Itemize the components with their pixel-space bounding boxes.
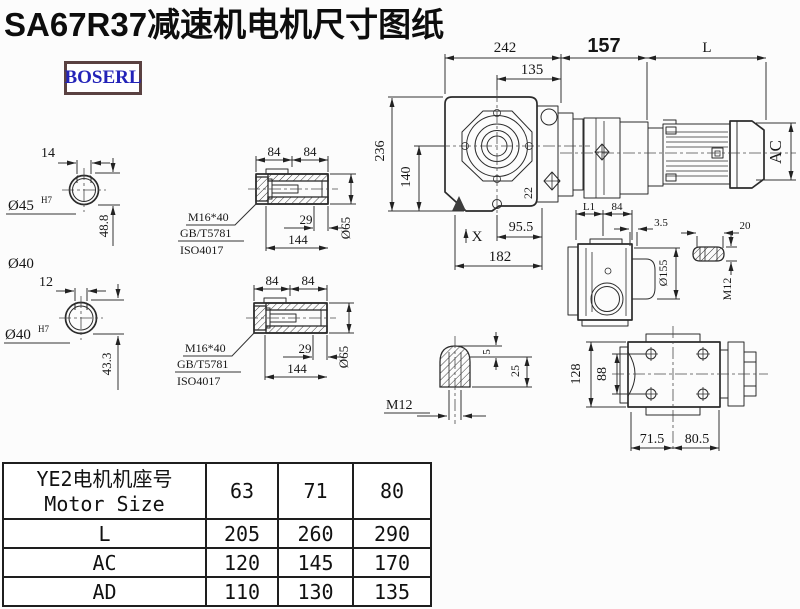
- dim-keyway-width: 14: [41, 146, 55, 161]
- cell-AD-71: 130: [278, 577, 353, 606]
- view-gearbox-side: L1 84 3.5 Ø155 20 M12: [568, 201, 751, 326]
- label-od-40: Ø40: [8, 256, 34, 272]
- view-gearbox-front: 22 X 242 135 236 140 95.5 182: [373, 40, 590, 270]
- label-std-gb: GB/T5781: [180, 226, 231, 240]
- label-bolt: M16*40: [185, 341, 226, 355]
- cell-AC-63: 120: [206, 548, 278, 577]
- label-plug-m12: M12: [720, 278, 734, 301]
- dim-motor-dia: AC: [766, 140, 785, 164]
- dim-144: 144: [288, 232, 308, 247]
- dim-71-5: 71.5: [640, 432, 665, 447]
- dim-dia-155: Ø155: [656, 260, 670, 287]
- label-std-gb: GB/T5781: [177, 357, 228, 371]
- cell-L-80: 290: [353, 519, 431, 548]
- table-header-80: 80: [353, 463, 431, 519]
- dim-l1: L1: [583, 201, 595, 213]
- cell-AC-80: 170: [353, 548, 431, 577]
- row-label-AD: AD: [3, 577, 206, 606]
- label-bolt: M16*40: [188, 210, 229, 224]
- surface-mark-triangle: [452, 196, 466, 211]
- label-bore-40-tol: H7: [38, 324, 49, 334]
- table-header-label: YE2电机机座号 Motor Size: [3, 463, 206, 519]
- dim-22: 22: [521, 187, 535, 199]
- dim-motor-length: L: [702, 40, 711, 56]
- dim-48-8: 48.8: [96, 215, 111, 238]
- dim-135: 135: [521, 62, 544, 78]
- datum-x: X: [472, 229, 483, 245]
- dim-84-2: 84: [302, 273, 316, 288]
- dim-157: 157: [587, 35, 620, 57]
- table-header-row: YE2电机机座号 Motor Size 63 71 80: [3, 463, 431, 519]
- view-motor: 157 L AC: [560, 35, 796, 198]
- label-m12: M12: [386, 398, 412, 413]
- cell-L-63: 205: [206, 519, 278, 548]
- cell-AD-63: 110: [206, 577, 278, 606]
- dim-43-3: 43.3: [99, 353, 114, 376]
- drawing-sheet: SA67R37减速机电机尺寸图纸 BOSERL 14 Ø45: [0, 0, 800, 609]
- cell-AC-71: 145: [278, 548, 353, 577]
- view-hollow-shaft-b: 84 84 29 144 Ø65 M16*40 GB/T5781 ISO4017: [175, 273, 354, 388]
- table-row-L: L 205 260 290: [3, 519, 431, 548]
- view-shaft-section-40: 12 Ø40 H7 43.3: [4, 275, 124, 390]
- dim-84-1: 84: [266, 273, 280, 288]
- dim-144: 144: [287, 361, 307, 376]
- view-plug-detail: 5 25 M12: [384, 332, 532, 424]
- table-row-AD: AD 110 130 135: [3, 577, 431, 606]
- dim-29: 29: [299, 341, 312, 356]
- dim-80-5: 80.5: [685, 432, 710, 447]
- dim-84-1: 84: [268, 144, 282, 159]
- table-header-63: 63: [206, 463, 278, 519]
- view-gearbox-bottom: 128 88 71.5 80.5: [569, 326, 768, 452]
- view-shaft-section-45: 14 Ø45 H7 48.8 Ø40: [6, 146, 120, 272]
- dim-128: 128: [569, 364, 584, 385]
- fan-cover-outline: [730, 121, 764, 188]
- label-std-iso: ISO4017: [180, 243, 223, 257]
- dim-dia-65: Ø65: [336, 346, 351, 368]
- dim-5: 5: [481, 349, 493, 355]
- cell-L-71: 260: [278, 519, 353, 548]
- dim-236: 236: [373, 141, 388, 162]
- dim-84-2: 84: [304, 144, 318, 159]
- dim-dia-65: Ø65: [338, 217, 353, 239]
- dim-242: 242: [494, 40, 517, 56]
- dim-keyway-width: 12: [39, 275, 53, 290]
- cell-AD-80: 135: [353, 577, 431, 606]
- motor-size-label-cn: YE2电机机座号: [4, 466, 205, 492]
- row-label-AC: AC: [3, 548, 206, 577]
- label-std-iso: ISO4017: [177, 374, 220, 388]
- motor-size-table: YE2电机机座号 Motor Size 63 71 80 L 205 260 2…: [2, 462, 432, 607]
- dim-3-5: 3.5: [654, 217, 668, 229]
- dim-95-5: 95.5: [509, 220, 534, 235]
- dim-88: 88: [595, 367, 610, 381]
- table-header-71: 71: [278, 463, 353, 519]
- dim-84: 84: [612, 201, 624, 213]
- dim-182: 182: [489, 249, 512, 265]
- label-bore-45: Ø45: [8, 198, 34, 214]
- dim-140: 140: [399, 167, 414, 188]
- label-bore-45-tol: H7: [41, 195, 52, 205]
- dim-29: 29: [300, 212, 313, 227]
- label-bore-40: Ø40: [5, 327, 31, 343]
- table-row-AC: AC 120 145 170: [3, 548, 431, 577]
- motor-size-label-en: Motor Size: [4, 492, 205, 516]
- plug-side: [693, 247, 724, 261]
- row-label-L: L: [3, 519, 206, 548]
- dim-20: 20: [740, 220, 752, 232]
- view-hollow-shaft-a: 84 84 29 144 Ø65 M16*40 GB/T5781 ISO4017: [178, 144, 356, 257]
- dim-25: 25: [508, 365, 522, 377]
